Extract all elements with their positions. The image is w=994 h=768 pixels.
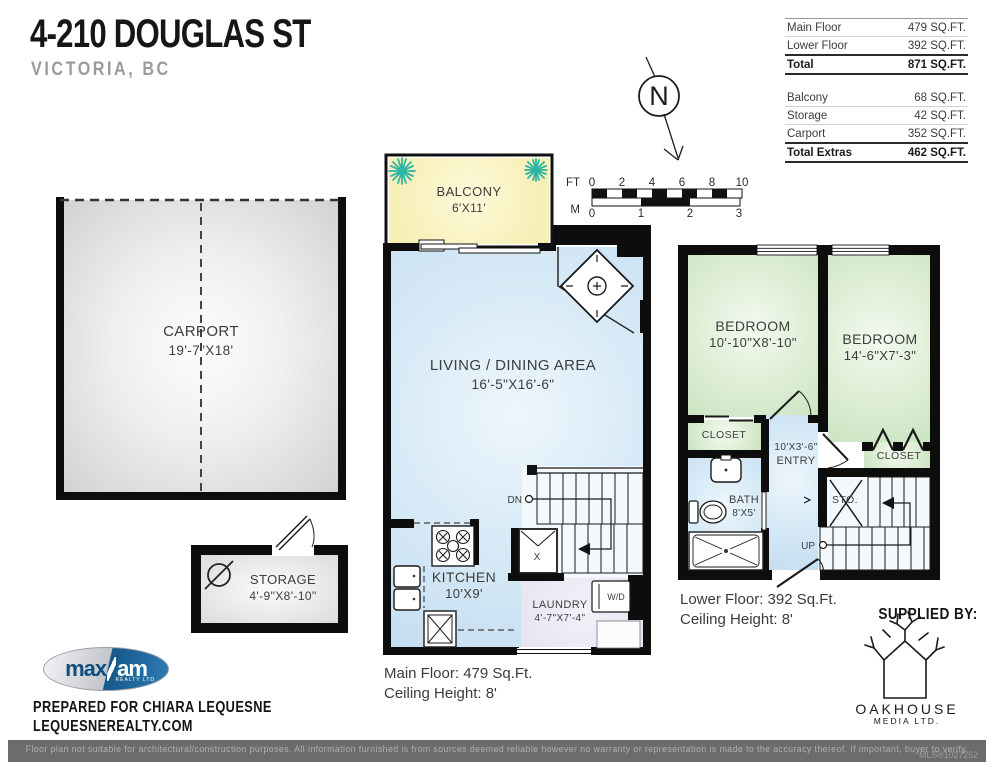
table-row: Carport 352 SQ.FT. bbox=[785, 125, 968, 142]
row-value: 479 SQ.FT. bbox=[908, 22, 966, 34]
room-label-balcony: BALCONY 6'X11' bbox=[409, 184, 529, 216]
room-label-sto: STO. bbox=[822, 494, 868, 508]
room-label-bedroom2: BEDROOM 14'-6"X7'-3" bbox=[815, 330, 945, 365]
room-label-kitchen: KITCHEN 10'X9' bbox=[414, 568, 514, 603]
row-label: Carport bbox=[787, 128, 825, 140]
svg-text:3: 3 bbox=[736, 208, 742, 220]
row-value: 462 SQ.FT. bbox=[908, 147, 966, 159]
row-label: Balcony bbox=[787, 92, 828, 104]
prepared-for-text: PREPARED FOR CHIARA LEQUESNE LEQUESNEREA… bbox=[33, 698, 272, 736]
svg-text:10: 10 bbox=[736, 177, 749, 189]
room-label-laundry: LAUNDRY 4'-7"X7'-4" bbox=[510, 598, 610, 625]
svg-text:FT: FT bbox=[566, 177, 580, 189]
room-label-bath: BATH 8'X5' bbox=[714, 493, 774, 520]
row-label: Total Extras bbox=[787, 147, 852, 159]
disclaimer-bar: Floor plan not suitable for architectura… bbox=[8, 740, 986, 762]
scale-bar: FT 0 2 4 6 8 10 M 0 1 2 3 bbox=[566, 177, 748, 220]
table-row: Lower Floor 392 SQ.FT. bbox=[785, 37, 968, 54]
storage-door-icon bbox=[276, 516, 314, 550]
oakhouse-name: OAKHOUSE bbox=[845, 701, 969, 717]
bedroom-window-icon bbox=[757, 245, 889, 255]
svg-text:4: 4 bbox=[649, 177, 656, 189]
disclaimer-text: Floor plan not suitable for architectura… bbox=[8, 744, 986, 754]
table-row-total: Total 871 SQ.FT. bbox=[785, 54, 968, 75]
area-summary-table: Main Floor 479 SQ.FT. Lower Floor 392 SQ… bbox=[785, 18, 968, 163]
floor-plan-page: 4-210 DOUGLAS ST VICTORIA, BC Main Floor… bbox=[0, 0, 994, 768]
lower-floor-note: Lower Floor: 392 Sq.Ft. Ceiling Height: … bbox=[680, 590, 837, 630]
table-row: Balcony 68 SQ.FT. bbox=[785, 89, 968, 107]
main-stairwell-area bbox=[522, 466, 643, 578]
svg-text:0: 0 bbox=[589, 208, 595, 220]
svg-text:0: 0 bbox=[589, 177, 595, 189]
maxam-realty-logo: max am REALTY LTD bbox=[43, 647, 169, 691]
oakhouse-subname: MEDIA LTD. bbox=[845, 716, 969, 726]
room-label-carport: CARPORT 19'-7"X18' bbox=[131, 322, 271, 359]
page-title: 4-210 DOUGLAS ST bbox=[30, 14, 311, 54]
row-value: 42 SQ.FT. bbox=[914, 110, 966, 122]
row-value: 68 SQ.FT. bbox=[914, 92, 966, 104]
row-value: 392 SQ.FT. bbox=[908, 40, 966, 52]
mls-number: MLS®1027252 bbox=[919, 750, 978, 760]
room-label-closet2: CLOSET bbox=[864, 450, 934, 464]
row-label: Total bbox=[787, 59, 814, 71]
row-value: 871 SQ.FT. bbox=[908, 59, 966, 71]
oakhouse-tree-icon bbox=[865, 612, 944, 698]
lower-stairwell-area bbox=[818, 468, 930, 570]
svg-text:8: 8 bbox=[709, 177, 715, 189]
svg-text:6: 6 bbox=[679, 177, 685, 189]
room-label-entry: 10'X3'-6" ENTRY bbox=[765, 441, 827, 468]
row-label: Main Floor bbox=[787, 22, 841, 34]
row-label: Lower Floor bbox=[787, 40, 848, 52]
water-tank-icon bbox=[205, 561, 233, 589]
page-subtitle: VICTORIA, BC bbox=[31, 59, 171, 81]
north-label: N bbox=[649, 81, 669, 111]
table-gap bbox=[785, 75, 968, 89]
row-label: Storage bbox=[787, 110, 827, 122]
room-label-bedroom1: BEDROOM 10'-10"X8'-10" bbox=[688, 317, 818, 352]
svg-text:2: 2 bbox=[619, 177, 625, 189]
table-row: Storage 42 SQ.FT. bbox=[785, 107, 968, 125]
supplied-by-label: SUPPLIED BY: bbox=[869, 606, 988, 624]
main-floor-note: Main Floor: 479 Sq.Ft. Ceiling Height: 8… bbox=[384, 664, 532, 704]
north-arrow: N bbox=[639, 57, 683, 160]
row-value: 352 SQ.FT. bbox=[908, 128, 966, 140]
table-row: Main Floor 479 SQ.FT. bbox=[785, 19, 968, 37]
room-label-closet1: CLOSET bbox=[689, 429, 759, 443]
room-label-living: LIVING / DINING AREA 16'-5"X16'-6" bbox=[428, 356, 598, 393]
laundry-window-icon bbox=[517, 648, 591, 655]
svg-text:M: M bbox=[570, 204, 580, 216]
svg-text:2: 2 bbox=[687, 208, 693, 220]
room-label-storage: STORAGE 4'-9"X8'-10" bbox=[233, 572, 333, 604]
svg-text:1: 1 bbox=[638, 208, 644, 220]
table-row-total-extras: Total Extras 462 SQ.FT. bbox=[785, 142, 968, 163]
